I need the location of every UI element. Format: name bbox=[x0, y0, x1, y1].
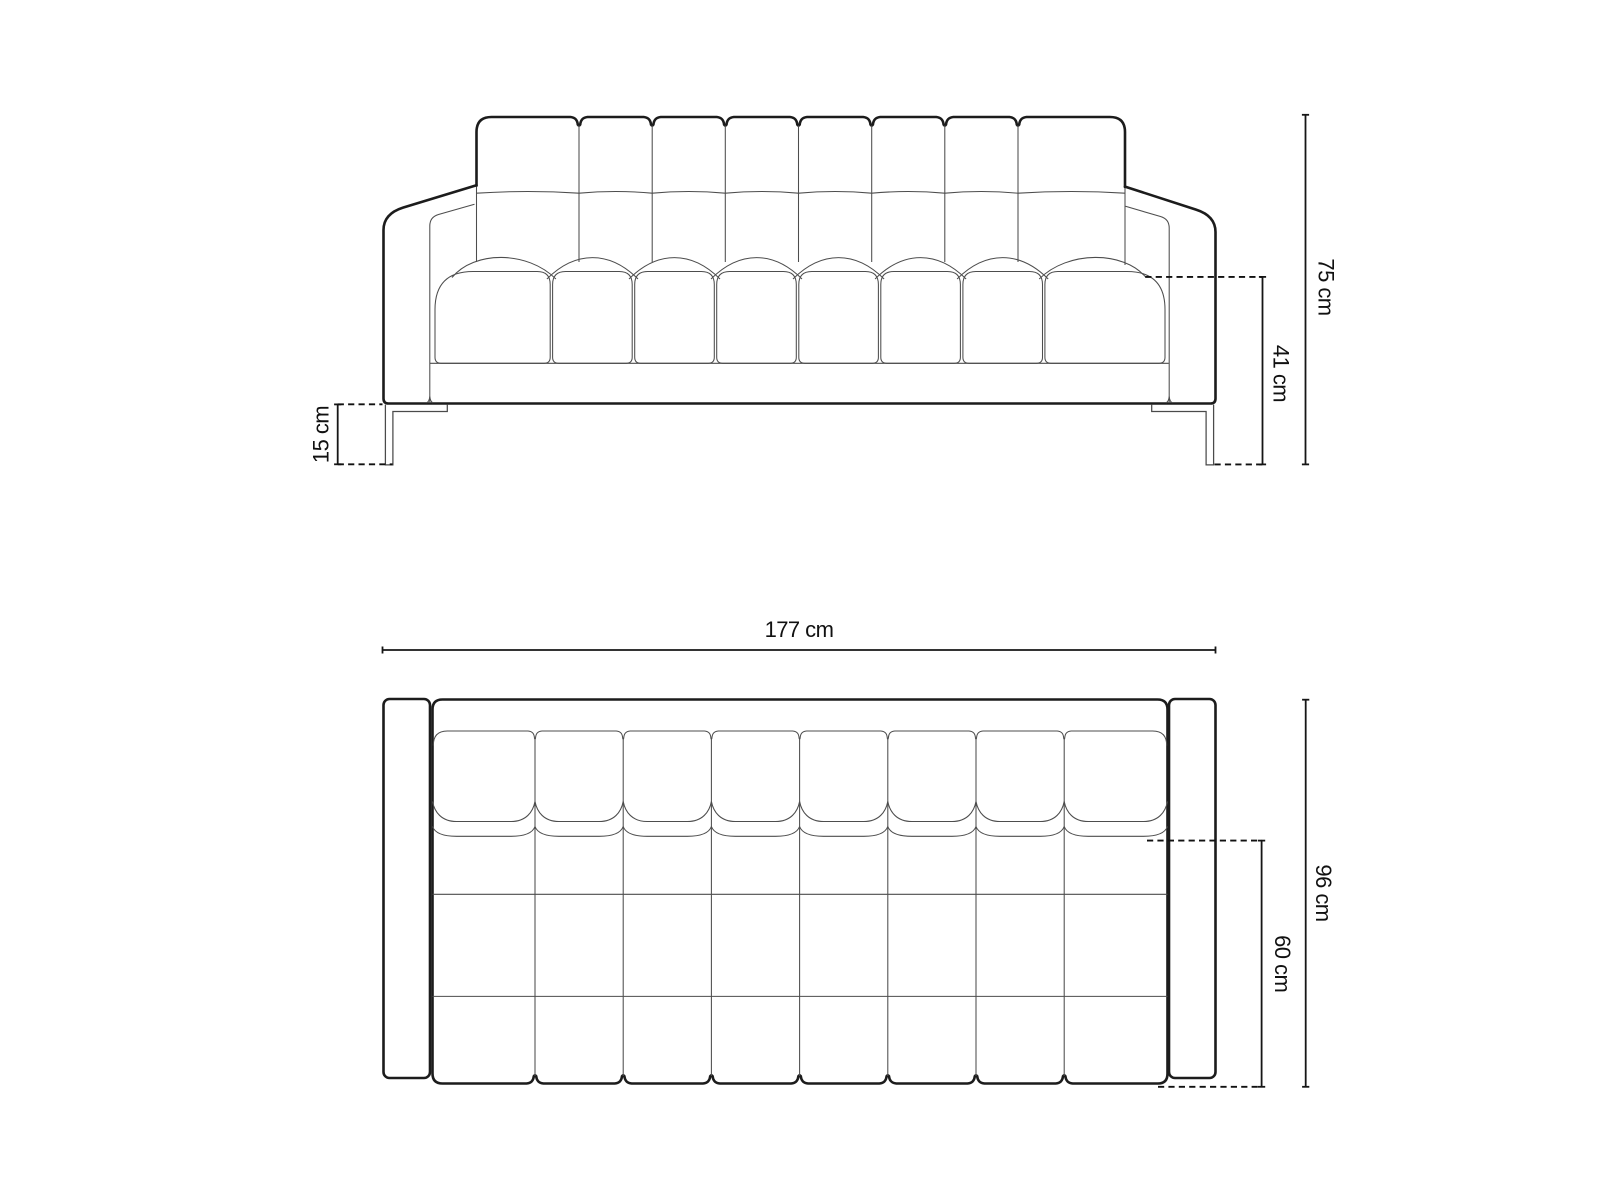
svg-text:15 cm: 15 cm bbox=[309, 406, 334, 463]
svg-text:96 cm: 96 cm bbox=[1311, 864, 1336, 921]
svg-text:60 cm: 60 cm bbox=[1270, 935, 1295, 992]
svg-text:177 cm: 177 cm bbox=[765, 617, 834, 642]
svg-text:75 cm: 75 cm bbox=[1314, 258, 1339, 315]
svg-text:41 cm: 41 cm bbox=[1269, 345, 1294, 402]
